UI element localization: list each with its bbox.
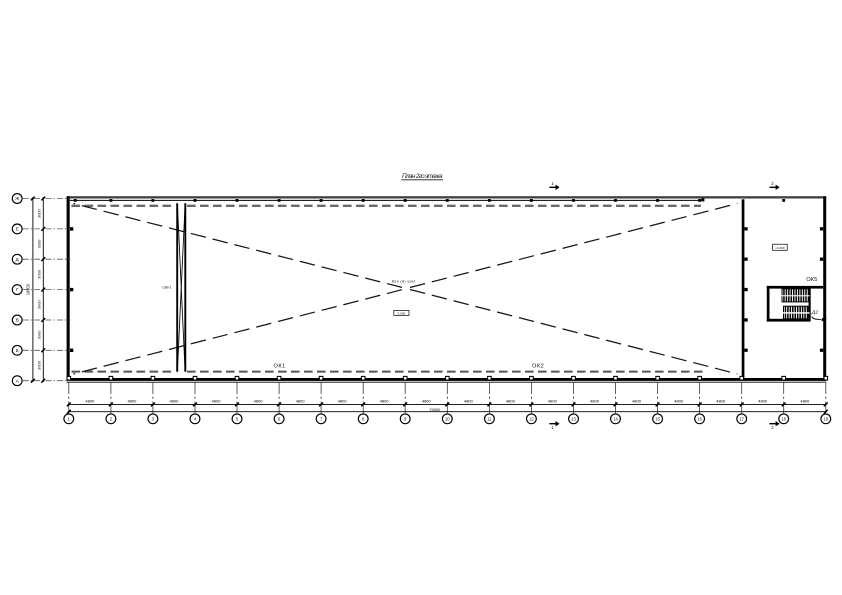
svg-text:План 2го этажа: План 2го этажа: [402, 173, 443, 180]
svg-text:19: 19: [824, 416, 829, 421]
svg-text:3000: 3000: [37, 300, 42, 310]
svg-text:ОК1: ОК1: [274, 364, 286, 370]
svg-text:3000: 3000: [37, 208, 42, 218]
svg-text:16: 16: [697, 416, 702, 421]
svg-text:Б: Б: [16, 348, 19, 353]
svg-text:10: 10: [445, 416, 450, 421]
svg-text:3000: 3000: [37, 269, 42, 279]
svg-text:Д2: Д2: [811, 309, 818, 315]
svg-text:18: 18: [781, 416, 786, 421]
svg-text:ОК2: ОК2: [532, 364, 544, 370]
svg-text:Е: Е: [16, 227, 19, 232]
svg-text:4800: 4800: [254, 398, 264, 403]
svg-text:11: 11: [487, 416, 492, 421]
svg-text:13: 13: [571, 416, 576, 421]
svg-text:4800: 4800: [169, 398, 179, 403]
svg-text:В: В: [16, 318, 19, 323]
svg-text:18000: 18000: [25, 283, 30, 295]
svg-text:4800: 4800: [716, 398, 726, 403]
svg-text:4800: 4800: [464, 398, 474, 403]
svg-text:+3.300: +3.300: [775, 246, 785, 250]
svg-text:3000: 3000: [37, 360, 42, 370]
svg-text:4800: 4800: [758, 398, 768, 403]
svg-text:4800: 4800: [632, 398, 642, 403]
svg-text:Вен (м) узел: Вен (м) узел: [392, 280, 415, 284]
svg-text:4800: 4800: [127, 398, 137, 403]
svg-text:0.000: 0.000: [398, 311, 406, 315]
svg-text:14: 14: [613, 416, 618, 421]
svg-text:4800: 4800: [422, 398, 432, 403]
svg-text:4800: 4800: [296, 398, 306, 403]
svg-text:4800: 4800: [212, 398, 222, 403]
svg-text:3000: 3000: [37, 239, 42, 249]
svg-text:12: 12: [529, 416, 534, 421]
svg-text:4800: 4800: [548, 398, 558, 403]
svg-text:А: А: [16, 378, 19, 383]
svg-text:4800: 4800: [590, 398, 600, 403]
svg-text:ОК5: ОК5: [806, 277, 817, 283]
svg-text:76800: 76800: [429, 407, 441, 412]
svg-text:Д: Д: [16, 257, 19, 262]
svg-text:17: 17: [739, 416, 744, 421]
svg-text:СвВ-1: СвВ-1: [162, 285, 171, 289]
svg-text:4800: 4800: [85, 398, 95, 403]
svg-text:4800: 4800: [800, 398, 810, 403]
svg-text:15: 15: [655, 416, 660, 421]
svg-text:3000: 3000: [37, 330, 42, 340]
svg-text:4800: 4800: [380, 398, 390, 403]
svg-text:4800: 4800: [338, 398, 348, 403]
svg-text:4800: 4800: [674, 398, 684, 403]
svg-text:4800: 4800: [506, 398, 516, 403]
